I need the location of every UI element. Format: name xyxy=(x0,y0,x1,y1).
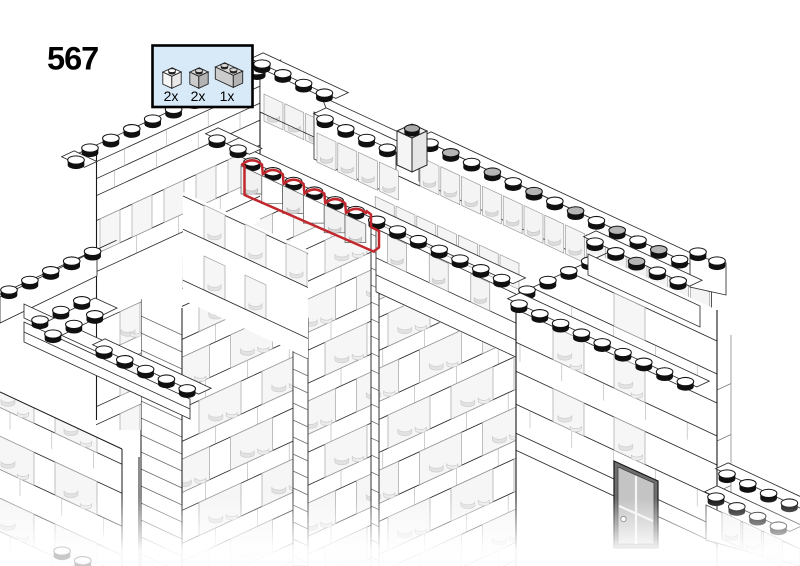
svg-text:567: 567 xyxy=(47,41,98,77)
svg-text:1x: 1x xyxy=(220,88,235,104)
svg-text:2x: 2x xyxy=(191,88,206,104)
svg-text:2x: 2x xyxy=(164,88,179,104)
